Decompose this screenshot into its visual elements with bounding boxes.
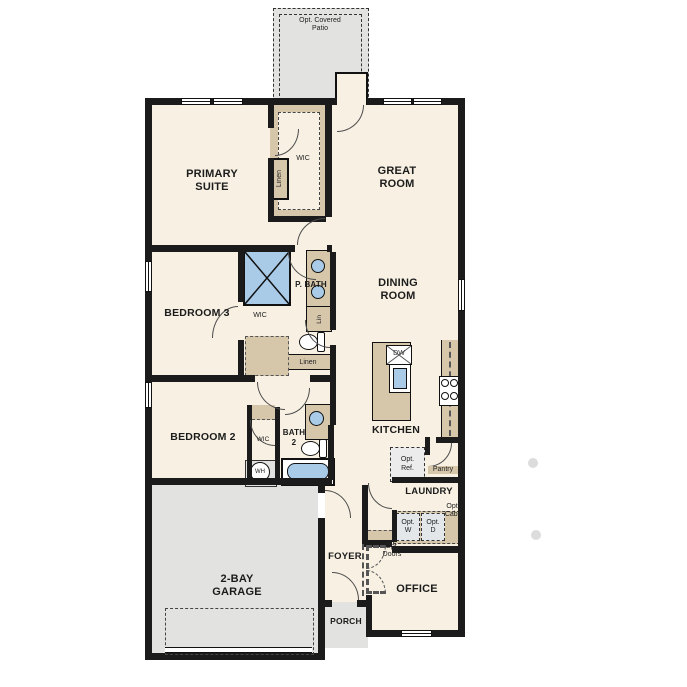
wall <box>145 375 255 382</box>
wall <box>145 292 152 383</box>
window <box>181 98 211 105</box>
wall <box>238 250 244 302</box>
wall <box>368 630 402 637</box>
bath2-toilet-tank <box>319 439 327 458</box>
wall <box>145 98 152 262</box>
wic3-shelf <box>245 336 289 376</box>
wall <box>325 105 332 217</box>
wall <box>357 600 368 607</box>
wic3-label: WIC <box>246 312 274 320</box>
office-label: OFFICE <box>387 583 447 596</box>
window <box>213 98 243 105</box>
wall <box>275 407 280 480</box>
stove-burner-3 <box>441 392 449 400</box>
laundry-label: LAUNDRY <box>394 486 464 497</box>
primary-linen-label: Linen <box>276 170 283 187</box>
garage-door <box>165 647 312 653</box>
wall <box>392 510 397 542</box>
wall <box>458 310 465 637</box>
opt-washer: Opt. W <box>396 513 420 541</box>
opt-doors-label: Opt. Doors <box>377 543 407 559</box>
patio-label: Opt. Covered Patio <box>292 17 348 33</box>
shower-x-icon <box>245 252 289 304</box>
bedroom3-label: BEDROOM 3 <box>147 307 247 320</box>
stove-burner-2 <box>450 379 458 387</box>
water-heater-label: WH <box>255 469 265 475</box>
bedroom2-label: BEDROOM 2 <box>153 431 253 444</box>
wall <box>362 485 368 542</box>
window <box>145 261 152 292</box>
watermark-dot <box>531 530 541 540</box>
bath2-label: BATH 2 <box>281 428 307 447</box>
hall-linen-label: Linen <box>299 359 316 366</box>
watermark-dot <box>528 458 538 468</box>
wall <box>268 158 274 216</box>
primary-wic-label: WIC <box>289 155 317 163</box>
shower <box>243 250 291 306</box>
window <box>145 382 152 408</box>
opt-dryer-label: Opt. D <box>424 519 442 535</box>
wall <box>145 478 332 485</box>
wall <box>330 345 336 425</box>
kitchen-label: KITCHEN <box>361 424 431 437</box>
stove-burner-4 <box>450 392 458 400</box>
wall <box>318 485 325 493</box>
floor-plan: Linen Lin Linen WH DW Opt. Ref. <box>0 0 687 687</box>
opt-ref-label: Opt. Ref. <box>396 456 420 472</box>
wall <box>318 518 325 660</box>
wall <box>145 245 295 252</box>
patio-door-vestibule <box>335 72 368 107</box>
dining-room-label: DINING ROOM <box>363 277 433 303</box>
opt-washer-label: Opt. W <box>399 519 417 535</box>
opt-cabs-label: Opt. Cabs <box>440 503 466 519</box>
dishwasher: DW <box>386 345 412 365</box>
window <box>401 630 432 637</box>
primary-suite-label: PRIMARY SUITE <box>177 168 247 194</box>
stove-burner-1 <box>441 379 449 387</box>
wic2-shelf <box>252 405 275 420</box>
hall-linen-closet: Linen <box>283 354 333 370</box>
pbath-label: P. BATH <box>293 280 329 290</box>
wall <box>330 252 336 330</box>
dishwasher-label: DW <box>387 350 411 357</box>
garage-label: 2-BAY GARAGE <box>197 573 277 599</box>
foyer-label: FOYER <box>325 551 365 562</box>
island-sink <box>389 364 411 393</box>
window <box>458 279 465 311</box>
wall <box>238 340 244 375</box>
wall <box>310 375 332 382</box>
wall <box>145 407 152 660</box>
island-sink-basin <box>393 368 407 389</box>
porch-label: PORCH <box>326 616 366 626</box>
wall <box>268 105 274 128</box>
wall <box>392 477 465 483</box>
window <box>383 98 412 105</box>
pantry-label: Pantry <box>428 466 458 474</box>
wall <box>327 245 332 252</box>
window <box>413 98 442 105</box>
wall <box>458 98 465 280</box>
bath2-sink <box>309 411 324 426</box>
great-room-label: GREAT ROOM <box>362 165 432 191</box>
wic2-label: WIC <box>251 436 275 443</box>
wall <box>328 425 334 480</box>
wall <box>432 630 458 637</box>
